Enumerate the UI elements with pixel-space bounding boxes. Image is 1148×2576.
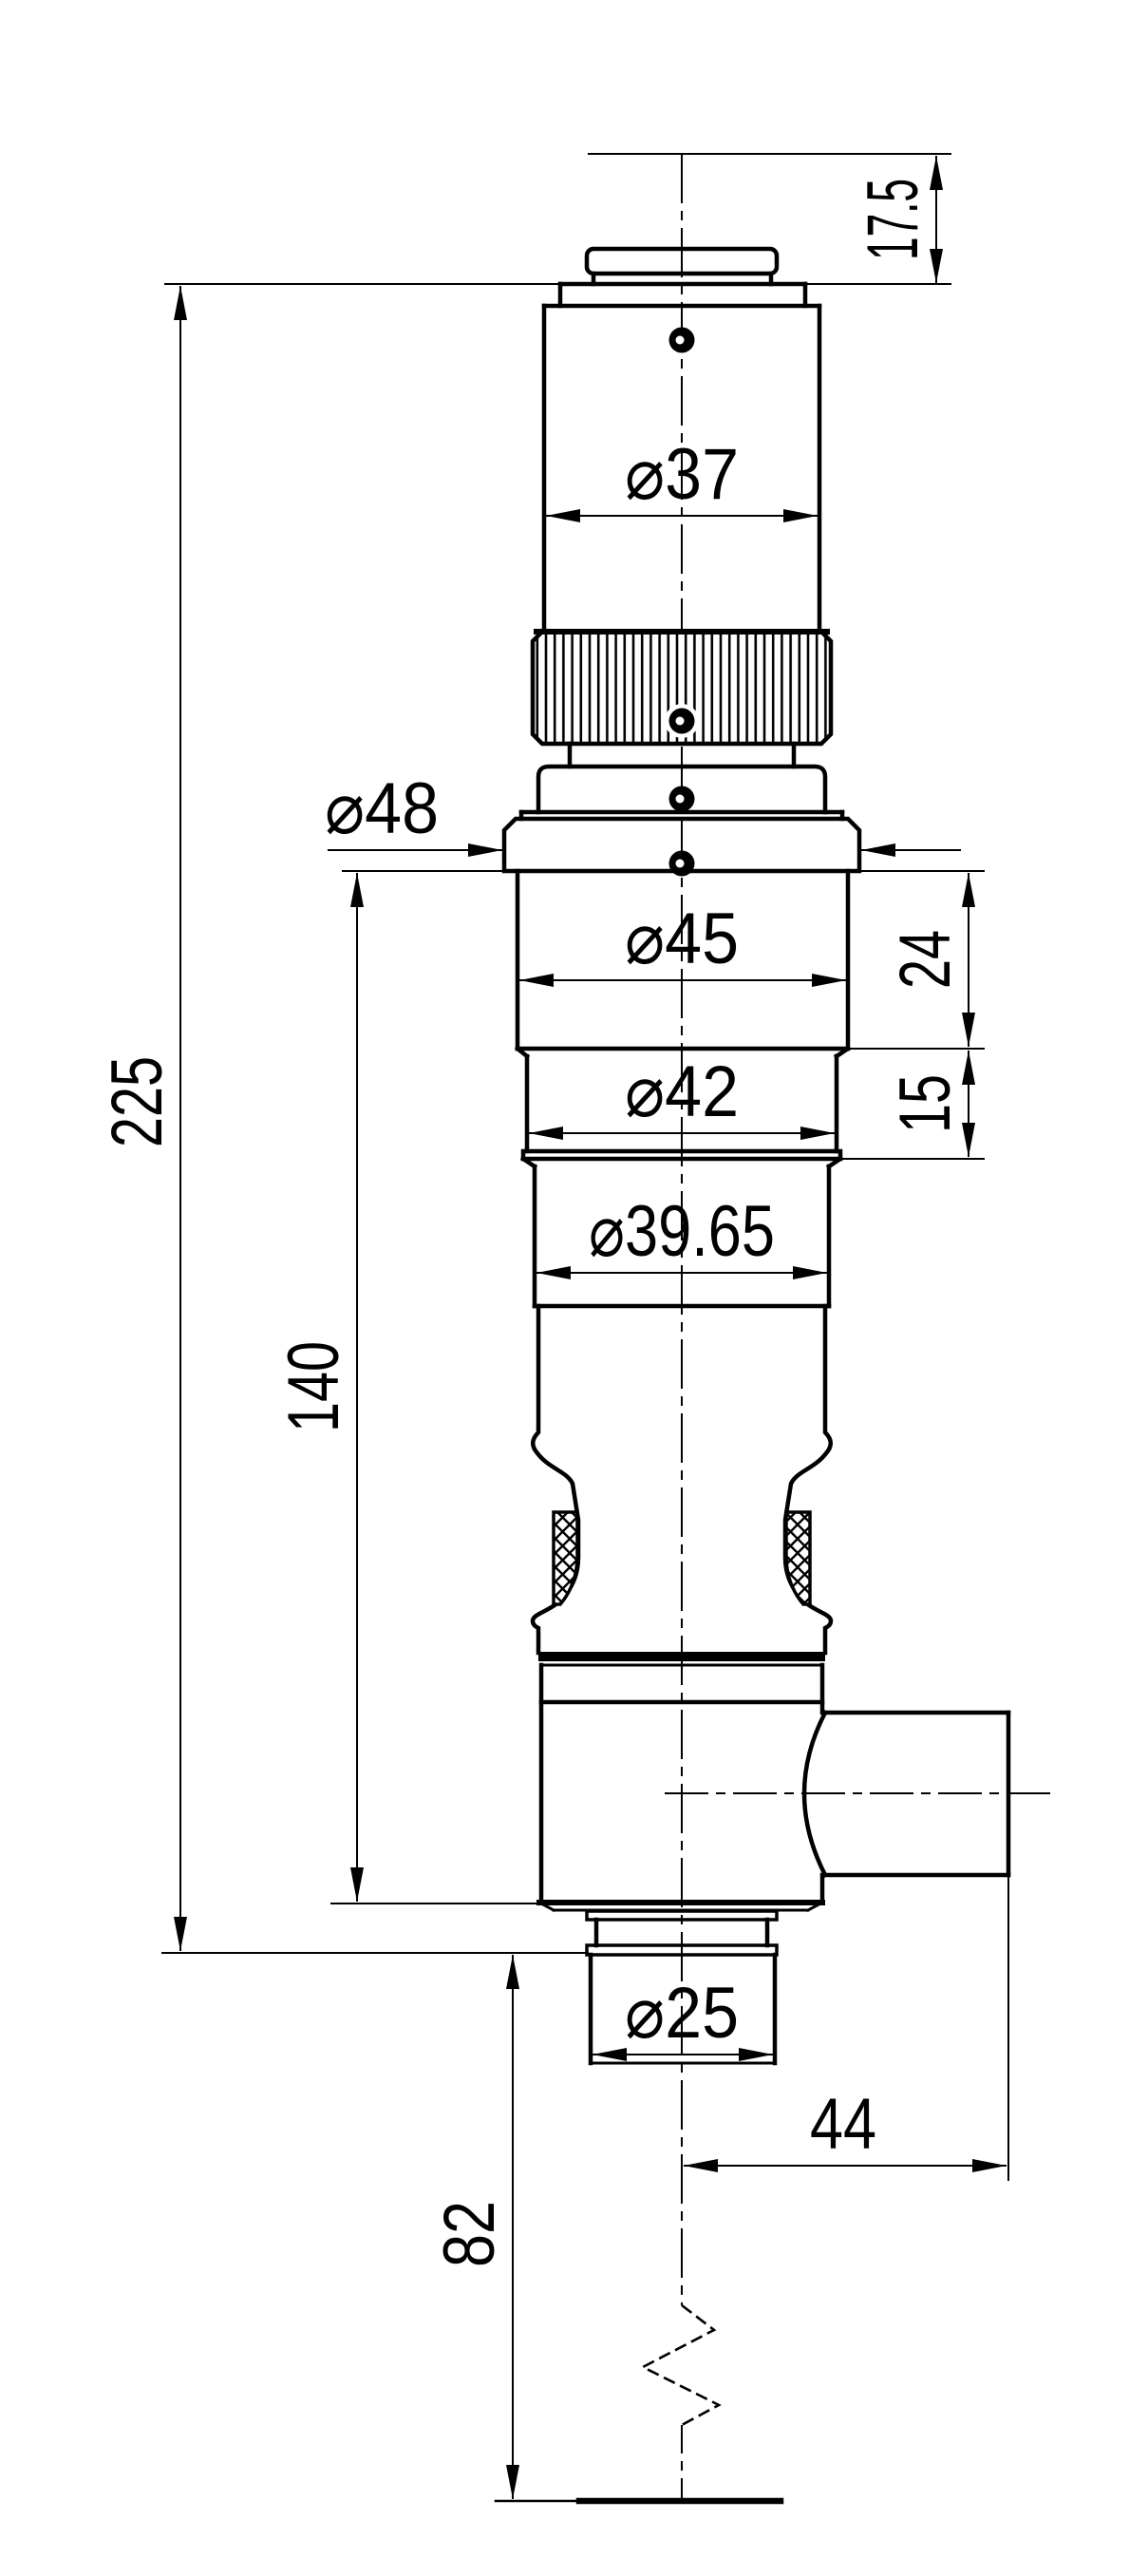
dim-label-dia-45: ⌀45 xyxy=(625,899,739,979)
dim-label-140: 140 xyxy=(273,1341,354,1432)
dim-label-82: 82 xyxy=(429,2201,510,2267)
dim-label-dia-37: ⌀37 xyxy=(625,434,739,515)
drawing-canvas: 17.5 ⌀37 ⌀48 ⌀45 xyxy=(0,0,1148,2576)
dim-label-dia-42: ⌀42 xyxy=(625,1051,739,1132)
dim-label-dia-25: ⌀25 xyxy=(625,1973,739,2054)
dim-label-15: 15 xyxy=(885,1074,966,1133)
dim-label-17-5: 17.5 xyxy=(853,179,933,260)
dim-label-44: 44 xyxy=(810,2084,876,2165)
dim-label-24: 24 xyxy=(885,930,966,989)
sheet-background xyxy=(0,0,1148,2576)
dim-label-dia-3965: ⌀39.65 xyxy=(589,1191,775,1272)
dim-label-225: 225 xyxy=(97,1056,178,1147)
dim-label-dia-48: ⌀48 xyxy=(325,768,439,849)
technical-drawing: 17.5 ⌀37 ⌀48 ⌀45 xyxy=(0,0,1148,2576)
